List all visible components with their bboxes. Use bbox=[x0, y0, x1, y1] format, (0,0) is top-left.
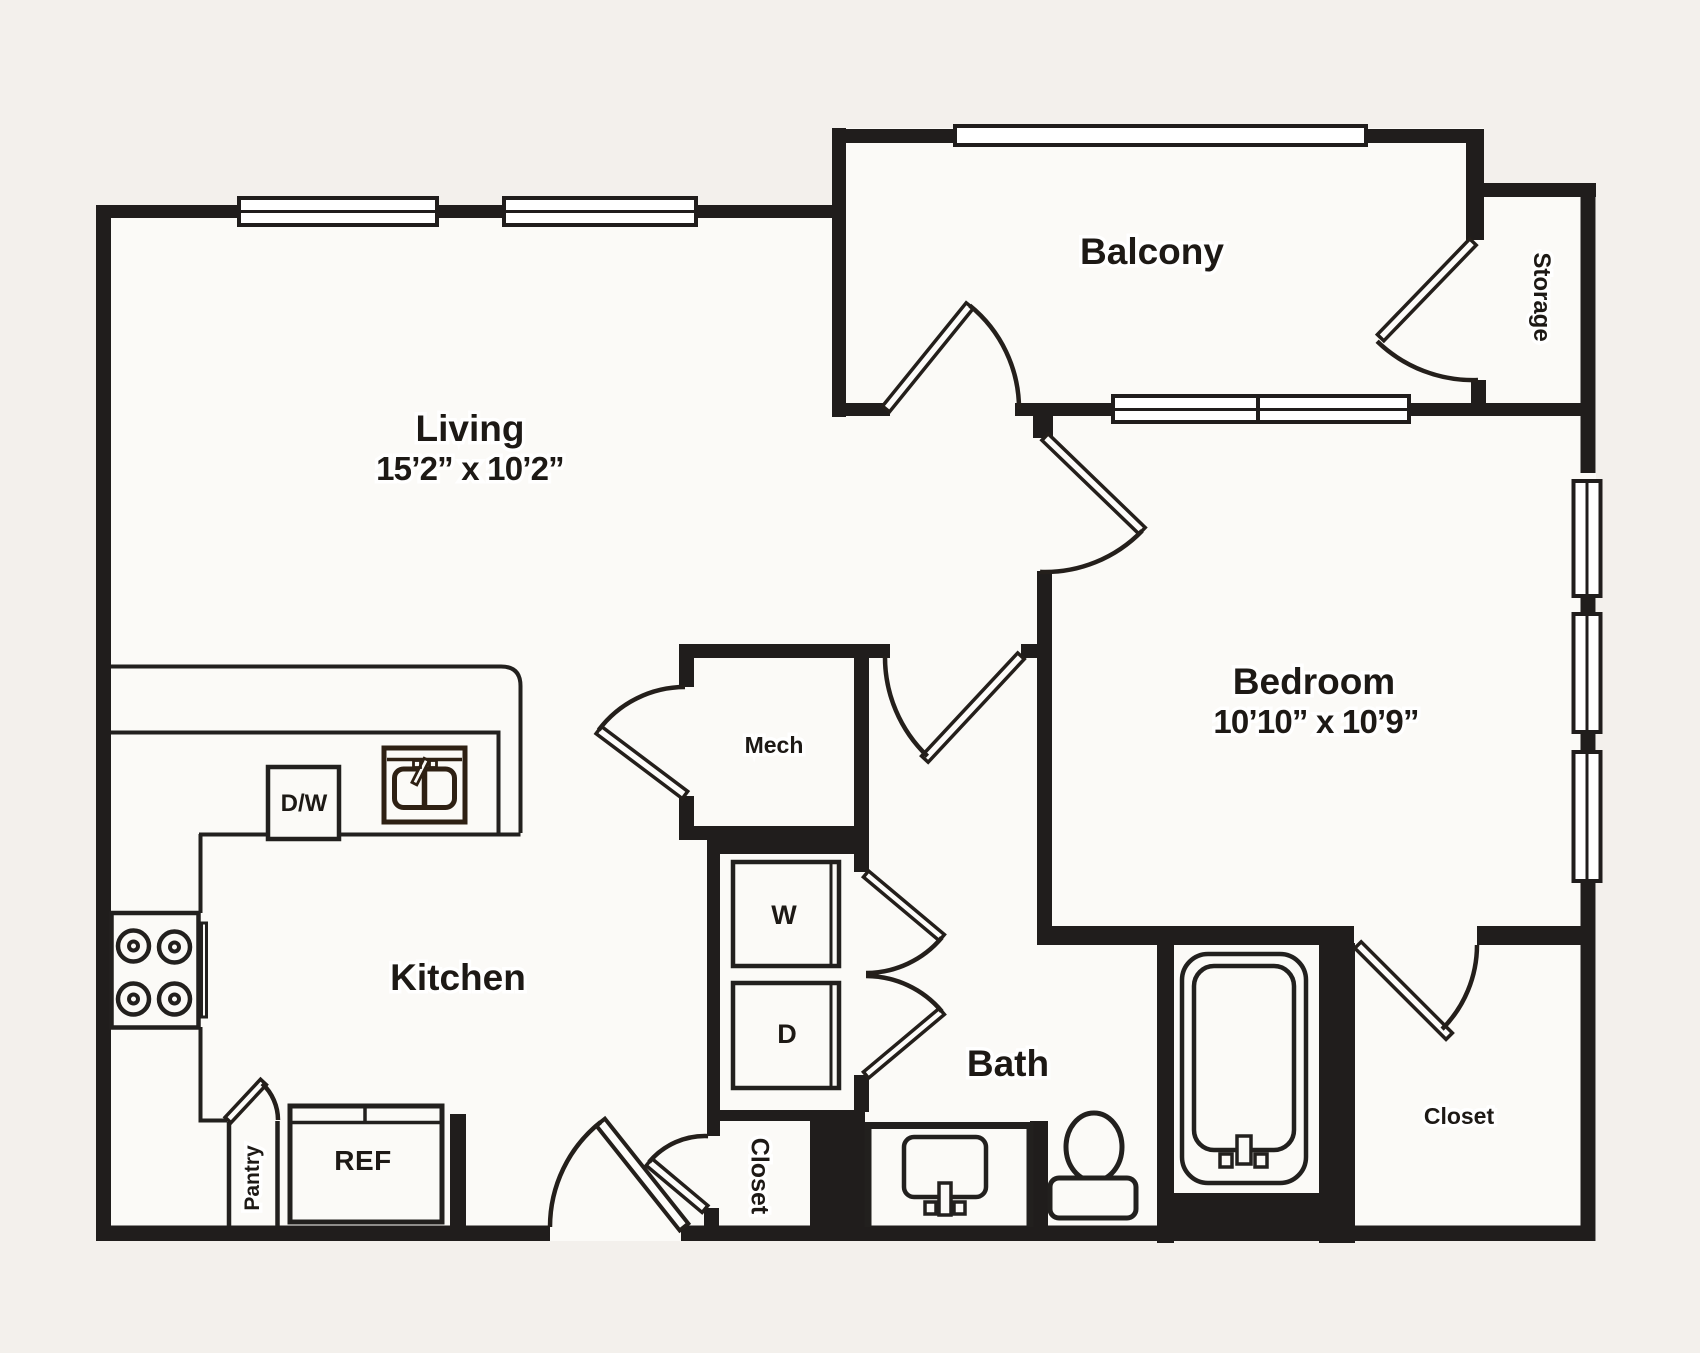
svg-text:10’10” x 10’9”: 10’10” x 10’9” bbox=[1213, 703, 1418, 740]
svg-text:W: W bbox=[771, 900, 797, 930]
svg-text:Bedroom: Bedroom bbox=[1233, 661, 1395, 702]
svg-text:Closet: Closet bbox=[1424, 1103, 1495, 1129]
svg-text:Storage: Storage bbox=[1528, 252, 1555, 341]
svg-text:REF: REF bbox=[334, 1145, 392, 1176]
svg-text:Pantry: Pantry bbox=[241, 1145, 264, 1211]
svg-text:Balcony: Balcony bbox=[1080, 231, 1224, 272]
svg-text:Closet: Closet bbox=[746, 1138, 774, 1215]
svg-text:Mech: Mech bbox=[745, 732, 804, 758]
svg-text:Living: Living bbox=[416, 408, 525, 449]
svg-text:15’2” x 10’2”: 15’2” x 10’2” bbox=[376, 450, 564, 487]
svg-text:D: D bbox=[777, 1019, 797, 1049]
svg-text:Kitchen: Kitchen bbox=[390, 957, 526, 998]
svg-text:D/W: D/W bbox=[281, 790, 328, 817]
svg-text:Bath: Bath bbox=[967, 1043, 1049, 1084]
